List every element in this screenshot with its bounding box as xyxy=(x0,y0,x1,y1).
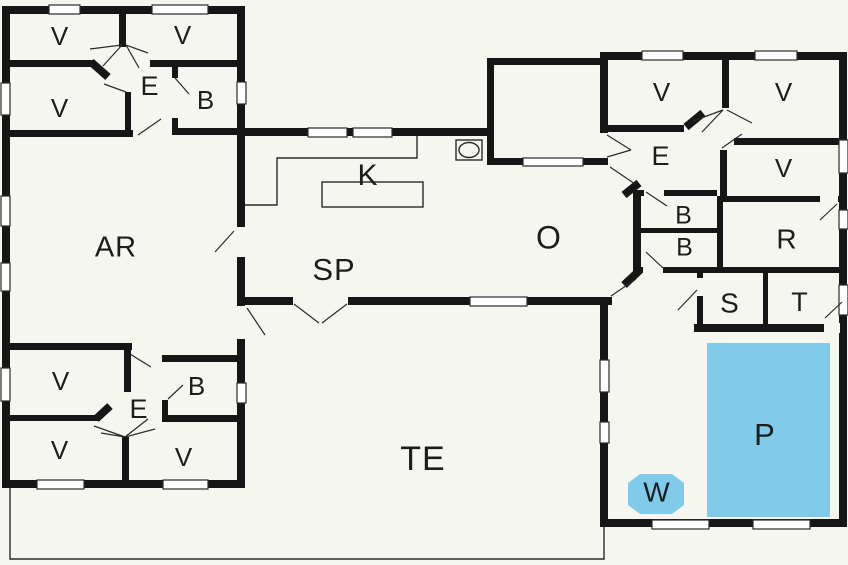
room-label-kitchen: K xyxy=(357,159,378,192)
room-label-hall-sw: E xyxy=(129,394,148,424)
room-label-bedroom-ne-1: V xyxy=(653,77,671,107)
room-label-terrace: TE xyxy=(400,440,445,478)
room-label-living-room: O xyxy=(536,219,562,255)
room-label-bath-nw: B xyxy=(197,85,215,115)
room-label-bath-ne-1: B xyxy=(675,202,693,230)
room-label-bedroom-ne-3: V xyxy=(775,153,793,183)
room-label-bedroom-nw-1: V xyxy=(51,21,69,51)
room-label-dining: SP xyxy=(312,252,355,287)
floor-plan-canvas: V V E B V AR K SP O V B E V V TE V V E V… xyxy=(0,0,848,565)
room-label-hall-nw: E xyxy=(140,71,159,101)
room-label-bath-sw: B xyxy=(188,371,206,401)
room-label-bath-ne-2: B xyxy=(676,234,694,262)
room-label-whirlpool: W xyxy=(643,476,670,507)
room-label-bedroom-ne-2: V xyxy=(775,77,793,107)
room-label-pool: P xyxy=(754,417,776,452)
room-label-bedroom-sw-2: V xyxy=(51,435,69,465)
room-label-toilet: T xyxy=(791,287,809,317)
room-label-activity-room: AR xyxy=(95,232,137,264)
room-label-bedroom-sw-3: V xyxy=(175,442,193,472)
floor-plan-drawing: V V E B V AR K SP O V B E V V TE V V E V… xyxy=(0,0,848,565)
room-label-bedroom-nw-3: V xyxy=(51,93,69,123)
room-label-bedroom-nw-2: V xyxy=(174,20,192,50)
room-label-bedroom-sw-1: V xyxy=(52,366,70,396)
room-label-sauna: S xyxy=(720,287,740,318)
room-label-utility-room: R xyxy=(776,223,797,254)
room-label-hall-ne: E xyxy=(651,141,670,171)
